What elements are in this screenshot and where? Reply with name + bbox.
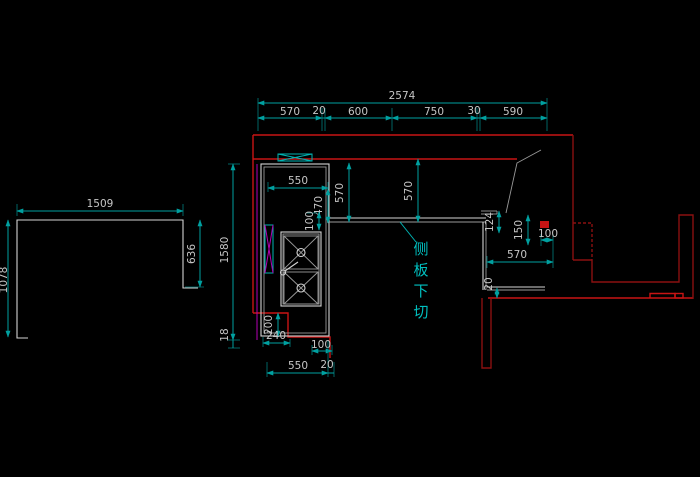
note-char-1: 侧: [413, 240, 428, 258]
dim-bottom-offset: 18: [219, 328, 231, 341]
cad-drawing: 1509 1078 636 2574 570 20 600 750 30 590: [0, 0, 700, 477]
double-sink: [281, 232, 322, 306]
hob-strip: [278, 154, 312, 161]
dim-seg-3: 600: [348, 106, 368, 118]
note-char-4: 切: [413, 303, 428, 321]
dim-total-width: 2574: [389, 90, 416, 102]
top-dimension-chain: 2574 570 20 600 750 30 590: [258, 90, 547, 131]
dim-notch-width: 240: [266, 330, 286, 342]
dim-left-width: 1509: [87, 198, 114, 210]
drainer-strip: [265, 225, 273, 273]
dim-cut-width: 100: [538, 228, 558, 240]
dim-depth-left: 570: [334, 183, 346, 203]
dim-seg-5: 30: [467, 105, 480, 117]
dim-overall-height: 1580: [219, 237, 231, 264]
dim-seg-6: 590: [503, 106, 523, 118]
dim-left-height: 1078: [0, 267, 10, 294]
dim-overhang: 20: [483, 277, 495, 290]
hob-marker: [540, 221, 549, 228]
dim-seg-2: 20: [312, 105, 325, 117]
dim-cabinet-width: 550: [288, 175, 308, 187]
dim-corner-offset: 100: [304, 211, 316, 231]
left-counter-outline: [17, 220, 198, 338]
side-panel-pillar: [482, 298, 491, 368]
side-panel-note: 侧 板 下 切: [400, 222, 429, 321]
note-char-3: 下: [413, 282, 428, 300]
left-height-chain: 1580 18: [219, 164, 240, 348]
dim-depth-mid: 570: [403, 181, 415, 201]
dim-cut-depth: 150: [513, 220, 525, 240]
cabinet-dimensions: 550 470 570 570 100 200 240 100 550 20: [263, 159, 418, 377]
cad-canvas: 1509 1078 636 2574 570 20 600 750 30 590: [0, 0, 700, 477]
dim-left-height-right: 636: [186, 244, 198, 264]
dim-panel-gap: 124: [484, 212, 496, 232]
note-char-2: 板: [413, 261, 428, 279]
right-wall-outline: [573, 135, 693, 299]
dim-front-gap: 20: [320, 359, 333, 371]
left-counter-dimensions: 1509 1078 636: [0, 198, 204, 337]
dim-seg-1: 570: [280, 106, 300, 118]
dim-section-width: 570: [507, 249, 527, 261]
dim-front-width: 550: [288, 360, 308, 372]
dim-seg-4: 750: [424, 106, 444, 118]
